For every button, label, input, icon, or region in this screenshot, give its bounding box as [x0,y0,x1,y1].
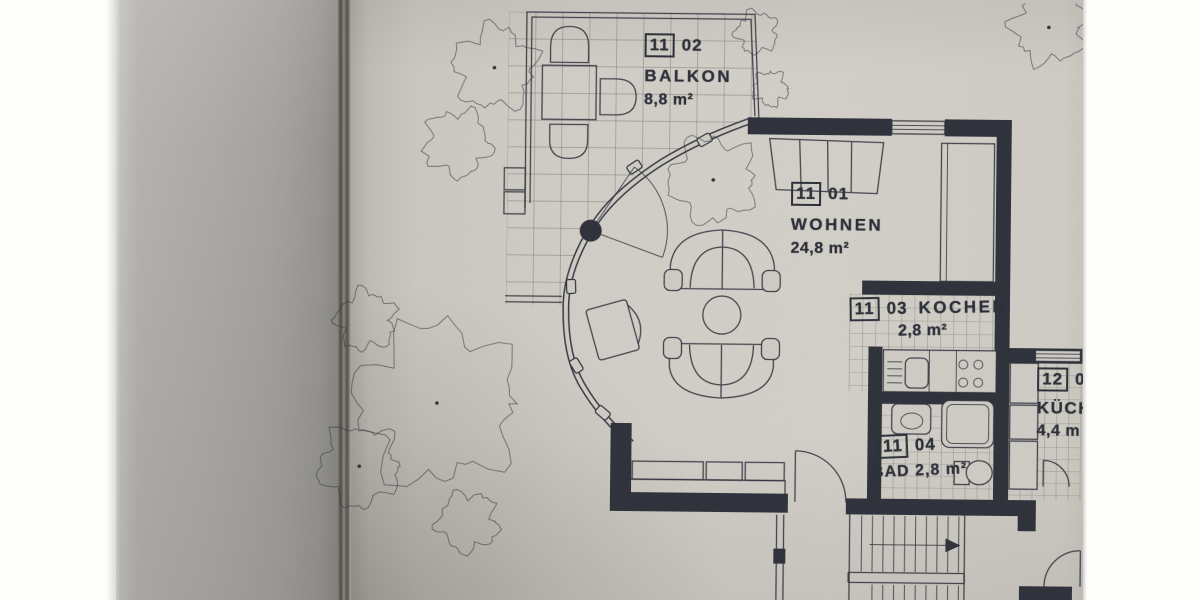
room-name: BALKON [644,66,732,87]
room-area: 8,8 m² [644,91,732,110]
book-photo: 11 02 BALKON 8,8 m² 11 01 WOHNEN 24,8 m²… [0,0,1200,600]
room-number: 01 [828,184,849,204]
floor-plan-wrap: 11 02 BALKON 8,8 m² 11 01 WOHNEN 24,8 m²… [0,0,1200,600]
room-label-balkon: 11 02 BALKON 8,8 m² [644,33,733,109]
unit-number: 11 [645,33,675,57]
room-code: 11 04 [877,431,966,458]
unit-number: 12 [1037,367,1068,391]
unit-number: 11 [791,182,821,206]
floor-plan [0,0,1200,600]
room-area: 2,8 m² [898,320,1008,340]
room-name: KOCHEN [918,297,1007,318]
room-code: 11 03 KOCHEN [849,295,1007,321]
room-code: 11 02 [645,33,733,57]
room-code: 11 01 [791,182,884,207]
unit-number: 11 [877,434,908,459]
unit-number: 11 [849,297,879,321]
room-number: 03 [886,298,907,318]
room-label-bad: 11 04 BAD 2,8 m² [877,431,967,481]
room-number: 04 [914,434,936,455]
photo-right-margin [1083,0,1200,600]
room-area: 24,8 m² [790,239,883,258]
photo-left-margin [0,0,116,600]
room-label-kochen: 11 03 KOCHEN 2,8 m² [849,295,1007,341]
room-name: BAD [872,462,910,481]
room-area: 2,8 m² [915,460,968,479]
room-name: WOHNEN [791,214,884,235]
room-label-wohnen: 11 01 WOHNEN 24,8 m² [790,182,883,259]
room-number: 02 [682,35,703,55]
